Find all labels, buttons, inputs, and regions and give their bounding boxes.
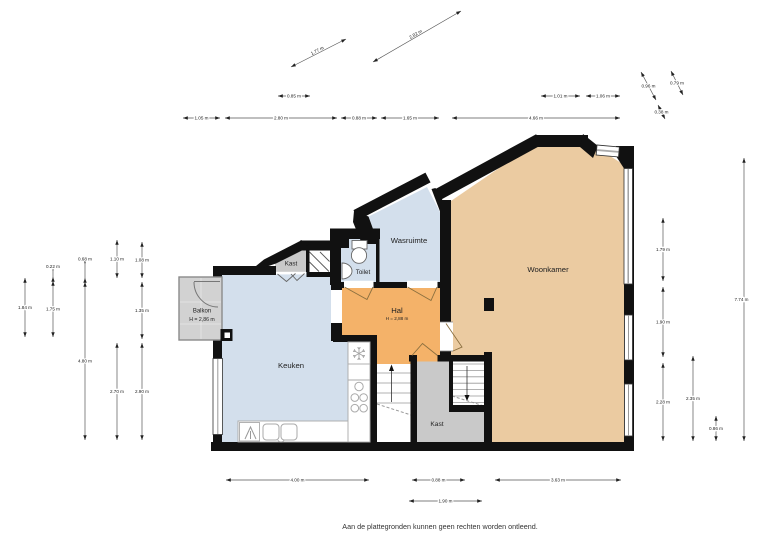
svg-text:1.90 m: 1.90 m	[656, 320, 670, 325]
svg-text:0.22 m: 0.22 m	[46, 264, 60, 269]
svg-text:1.06 m: 1.06 m	[596, 94, 610, 99]
svg-text:Kast: Kast	[430, 421, 443, 428]
svg-text:Wasruimte: Wasruimte	[391, 236, 427, 245]
svg-text:0.88 m: 0.88 m	[352, 116, 366, 121]
svg-text:H = 2,86 m: H = 2,86 m	[189, 317, 215, 323]
svg-text:4.00 m: 4.00 m	[290, 478, 304, 483]
svg-text:Hal: Hal	[391, 306, 403, 315]
svg-text:4.66 m: 4.66 m	[529, 116, 543, 121]
svg-text:1.05 m: 1.05 m	[194, 116, 208, 121]
svg-text:Balkon: Balkon	[193, 309, 211, 315]
svg-text:2.35 m: 2.35 m	[686, 396, 700, 401]
svg-text:1.75 m: 1.75 m	[46, 307, 60, 312]
svg-text:1.08 m: 1.08 m	[135, 258, 149, 263]
svg-text:1.01 m: 1.01 m	[553, 94, 567, 99]
svg-text:7.74 m: 7.74 m	[734, 297, 748, 302]
svg-text:Toilet: Toilet	[356, 269, 371, 276]
svg-text:Kast: Kast	[285, 261, 298, 268]
svg-text:1.10 m: 1.10 m	[110, 257, 124, 262]
svg-text:3.63 m: 3.63 m	[551, 478, 565, 483]
svg-text:1.35 m: 1.35 m	[135, 308, 149, 313]
svg-text:1.84 m: 1.84 m	[18, 305, 32, 310]
svg-text:0.68 m: 0.68 m	[78, 257, 92, 262]
svg-text:4.80 m: 4.80 m	[78, 359, 92, 364]
svg-text:H = 2,88 m: H = 2,88 m	[386, 316, 409, 321]
svg-text:2.80 m: 2.80 m	[274, 116, 288, 121]
svg-text:Aan de plattegronden kunnen ge: Aan de plattegronden kunnen geen rechten…	[342, 522, 537, 531]
svg-text:2.70 m: 2.70 m	[110, 389, 124, 394]
svg-text:2.28 m: 2.28 m	[656, 400, 670, 405]
svg-text:0.88 m: 0.88 m	[431, 478, 445, 483]
svg-text:0.38 m: 0.38 m	[654, 110, 668, 115]
svg-text:Woonkamer: Woonkamer	[527, 265, 569, 274]
svg-text:1.90 m: 1.90 m	[438, 499, 452, 504]
svg-text:0.79 m: 0.79 m	[670, 81, 684, 86]
svg-text:0.85 m: 0.85 m	[287, 94, 301, 99]
svg-text:2.90 m: 2.90 m	[135, 389, 149, 394]
svg-text:0.86 m: 0.86 m	[709, 426, 723, 431]
svg-text:0.96 m: 0.96 m	[641, 84, 655, 89]
svg-text:1.65 m: 1.65 m	[403, 116, 417, 121]
svg-text:1.79 m: 1.79 m	[656, 247, 670, 252]
svg-text:Keuken: Keuken	[278, 361, 304, 370]
